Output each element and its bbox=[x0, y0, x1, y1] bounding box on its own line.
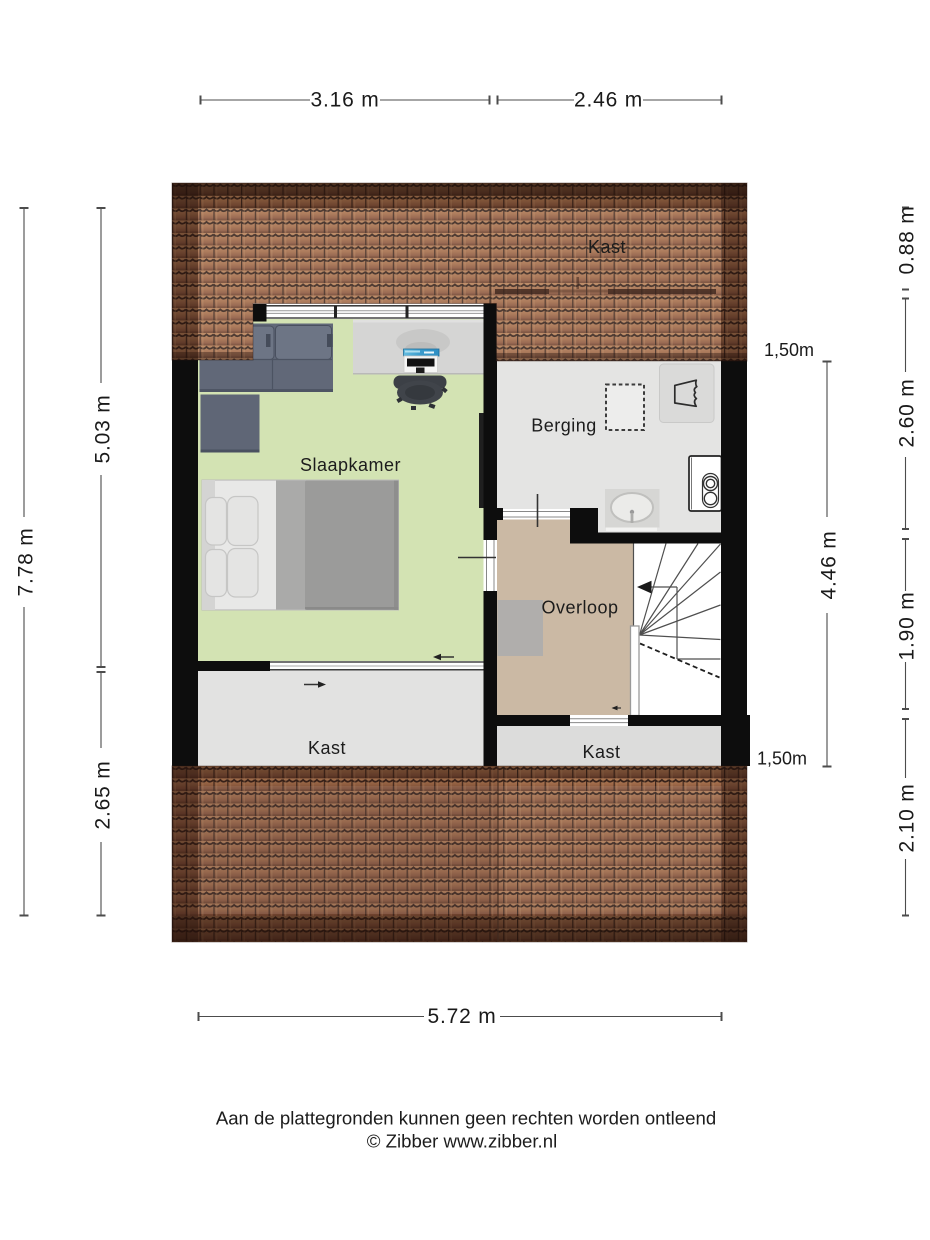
svg-text:Kast: Kast bbox=[308, 738, 346, 758]
svg-text:Overloop: Overloop bbox=[541, 598, 618, 618]
svg-text:Kast: Kast bbox=[582, 742, 620, 762]
svg-text:5.72 m: 5.72 m bbox=[428, 1005, 497, 1028]
svg-text:2.46 m: 2.46 m bbox=[574, 89, 643, 112]
svg-text:1.90 m: 1.90 m bbox=[896, 592, 919, 661]
svg-text:1,50m: 1,50m bbox=[764, 340, 814, 360]
svg-text:4.46 m: 4.46 m bbox=[818, 531, 841, 600]
svg-text:2.65 m: 2.65 m bbox=[92, 761, 115, 830]
svg-text:3.16 m: 3.16 m bbox=[311, 89, 380, 112]
svg-text:2.60 m: 2.60 m bbox=[896, 379, 919, 448]
svg-text:© Zibber www.zibber.nl: © Zibber www.zibber.nl bbox=[367, 1131, 557, 1152]
svg-text:0.88 m: 0.88 m bbox=[896, 206, 919, 275]
svg-text:Aan de plattegronden kunnen ge: Aan de plattegronden kunnen geen rechten… bbox=[216, 1108, 716, 1129]
svg-text:7.78 m: 7.78 m bbox=[15, 528, 38, 597]
svg-text:5.03 m: 5.03 m bbox=[92, 395, 115, 464]
svg-text:2.10 m: 2.10 m bbox=[896, 784, 919, 853]
svg-text:1,50m: 1,50m bbox=[757, 749, 807, 769]
svg-text:Slaapkamer: Slaapkamer bbox=[300, 455, 401, 475]
svg-text:Berging: Berging bbox=[531, 416, 597, 436]
svg-text:Kast: Kast bbox=[588, 237, 626, 257]
